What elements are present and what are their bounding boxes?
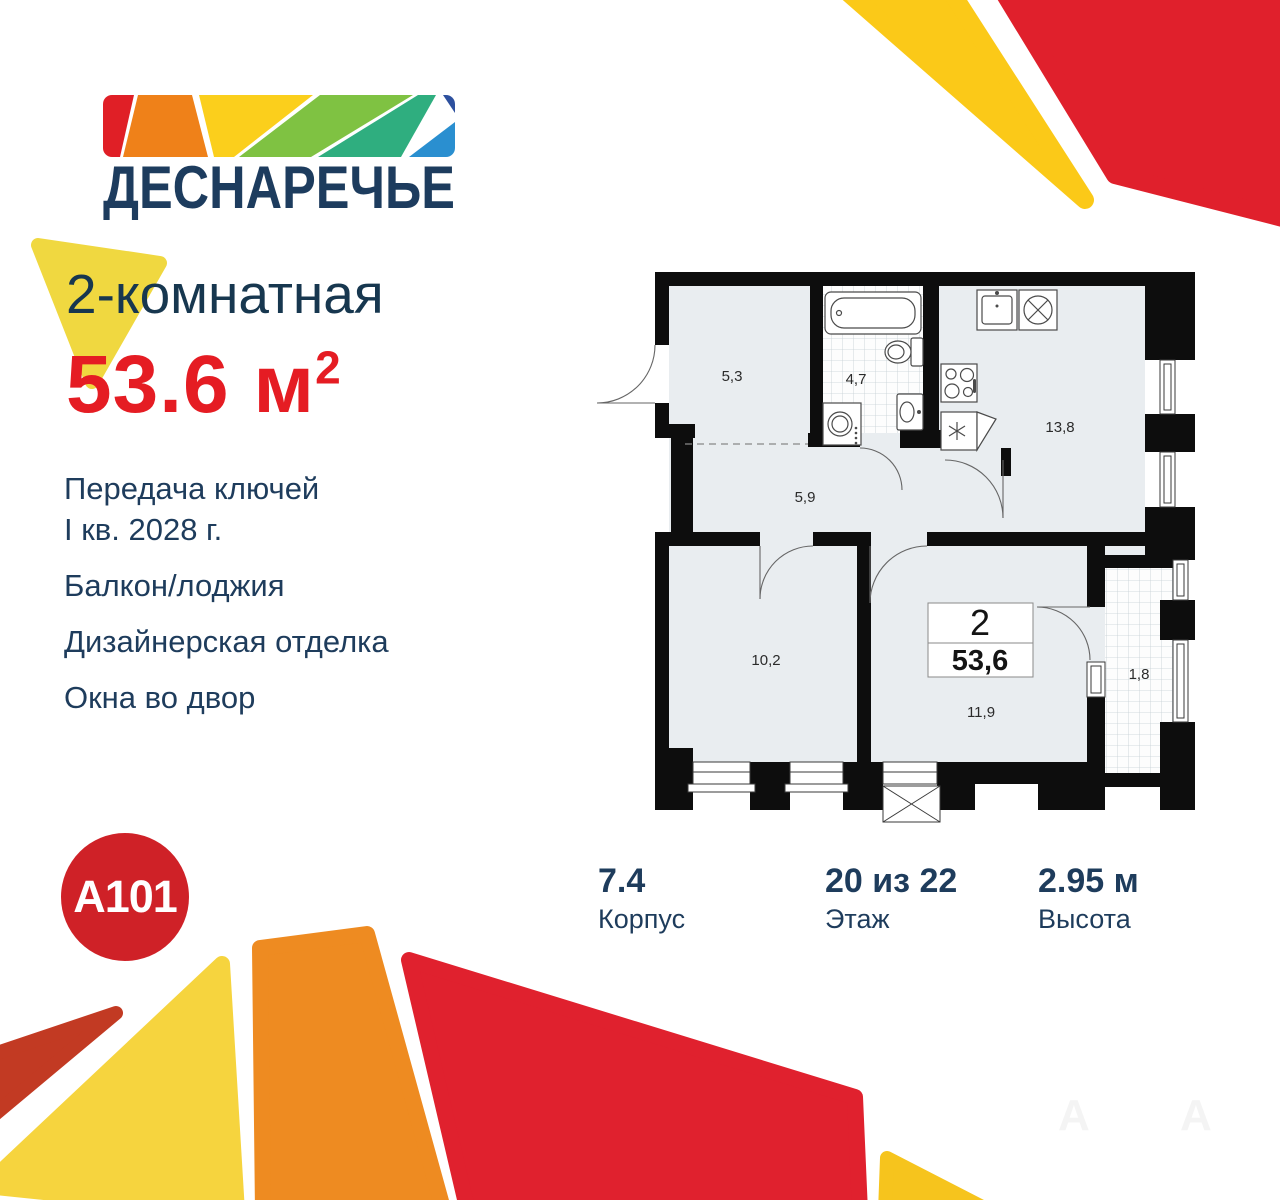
mosaic-orange-tile xyxy=(123,95,208,157)
room-label-bathroom: 4,7 xyxy=(846,371,867,388)
balcony-window-upper xyxy=(1173,560,1188,600)
plan-total-area: 53,6 xyxy=(952,645,1008,677)
stat-floor-label: Этаж xyxy=(825,903,957,935)
room-label-corridor: 5,9 xyxy=(795,489,816,506)
bedroom-window-right xyxy=(785,762,848,792)
kitchen-window-upper xyxy=(1160,360,1175,414)
feature-balcony: Балкон/лоджия xyxy=(64,565,389,606)
entrance-door xyxy=(597,345,655,403)
area-number: 53.6 xyxy=(66,339,230,430)
stat-floor: 20 из 22 Этаж xyxy=(825,862,957,935)
feature-delivery-line2: I кв. 2028 г. xyxy=(64,509,389,550)
watermark-letter: А xyxy=(1180,1091,1212,1140)
deco-bottom-red-shape xyxy=(409,960,860,1200)
mosaic-darkblue-tile xyxy=(443,95,455,113)
area-value: 53.6 м2 xyxy=(66,341,342,429)
room-label-balcony: 1,8 xyxy=(1129,666,1150,683)
stat-height: 2.95 м Высота xyxy=(1038,862,1139,935)
room-label-living-room: 11,9 xyxy=(967,704,995,721)
feature-finish: Дизайнерская отделка xyxy=(64,621,389,662)
deco-top-red-shape xyxy=(990,0,1280,225)
balcony-window-lower xyxy=(1173,640,1188,722)
stat-height-value: 2.95 м xyxy=(1038,862,1139,900)
deco-bottom-small-yellow-wedge xyxy=(885,1158,992,1200)
room-label-bedroom: 10,2 xyxy=(751,652,780,669)
deco-bottom-brick-wedge xyxy=(0,1013,116,1120)
bathtub xyxy=(825,292,921,334)
developer-logo: A101 xyxy=(61,833,189,961)
feature-delivery: Передача ключей I кв. 2028 г. xyxy=(64,468,389,550)
toilet xyxy=(885,338,923,366)
ac-basket xyxy=(883,786,940,822)
kitchen-hob-unit xyxy=(1019,290,1057,330)
brand-logo-mosaic xyxy=(103,95,455,157)
watermark-letter: А xyxy=(1058,1091,1090,1140)
plan-rooms-count: 2 xyxy=(970,602,990,643)
washing-machine xyxy=(823,403,861,445)
stats-row: 7.4 Корпус 20 из 22 Этаж 2.95 м Высота xyxy=(598,862,1218,942)
brand-name-text: ДЕСНАРЕЧЬЕ xyxy=(103,160,455,220)
room-label-kitchen: 13,8 xyxy=(1045,419,1074,436)
bathroom-sink xyxy=(897,394,923,430)
living-room-window xyxy=(883,762,937,784)
feature-delivery-line1: Передача ключей xyxy=(64,468,389,509)
stove xyxy=(941,364,977,402)
area-unit: м xyxy=(253,339,315,430)
deco-bottom-orange-shape xyxy=(260,934,444,1200)
stat-building-value: 7.4 xyxy=(598,862,685,900)
feature-windows: Окна во двор xyxy=(64,677,389,718)
page-title: 2-комнатная xyxy=(66,264,384,324)
kitchen-sink-counter xyxy=(977,290,1017,330)
stat-building: 7.4 Корпус xyxy=(598,862,685,935)
bedroom-window-left xyxy=(688,762,755,792)
deco-top-yellow-wedge xyxy=(845,0,1085,200)
area-exponent: 2 xyxy=(315,342,342,394)
stat-floor-value: 20 из 22 xyxy=(825,862,957,900)
plan-info-box: 2 53,6 xyxy=(928,602,1033,677)
deco-bottom-yellow-triangle xyxy=(0,964,237,1200)
stat-height-label: Высота xyxy=(1038,903,1139,935)
floor-plan: 2 53,6 5,3 4,7 5,9 13,8 10,2 11,9 1,8 xyxy=(595,262,1210,832)
feature-list: Передача ключей I кв. 2028 г. Балкон/лод… xyxy=(64,468,389,733)
balcony-door-window xyxy=(1087,662,1105,697)
brand-wordmark: ДЕСНАРЕЧЬЕ xyxy=(103,160,455,220)
developer-logo-text: A101 xyxy=(73,871,177,923)
room-label-entry-hall: 5,3 xyxy=(722,368,743,385)
kitchen-window-lower xyxy=(1160,452,1175,507)
stat-building-label: Корпус xyxy=(598,903,685,935)
